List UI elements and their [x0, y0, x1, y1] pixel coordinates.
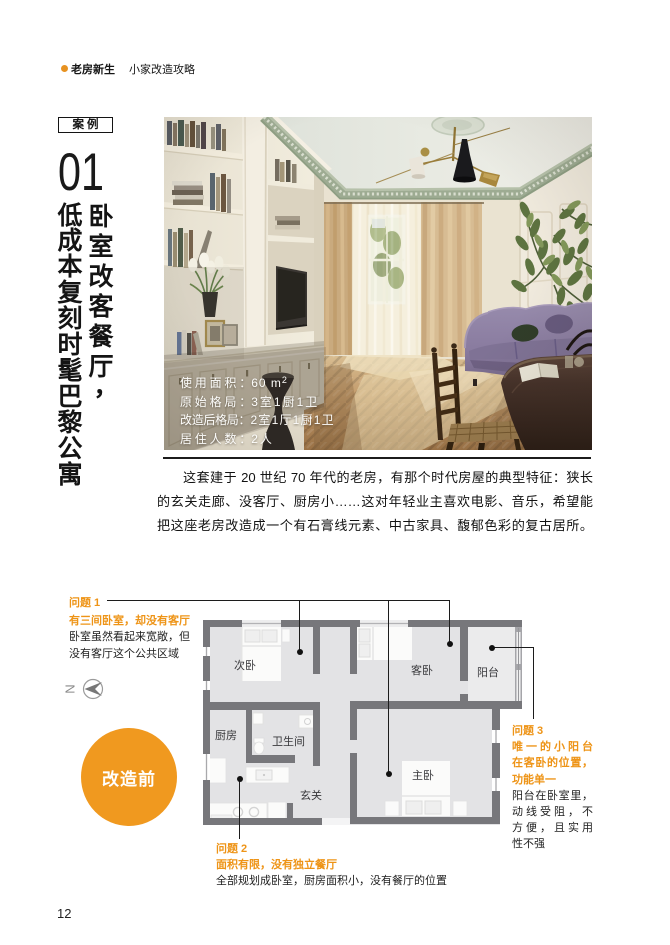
svg-text:客卧: 客卧 — [411, 663, 433, 677]
svg-text:玄关: 玄关 — [300, 788, 322, 802]
svg-text:厨房: 厨房 — [215, 729, 237, 742]
svg-text:主卧: 主卧 — [412, 769, 434, 782]
svg-text:卫生间: 卫生间 — [272, 734, 305, 748]
svg-text:次卧: 次卧 — [234, 658, 256, 672]
svg-text:阳台: 阳台 — [477, 665, 499, 679]
svg-text:N: N — [63, 684, 78, 693]
